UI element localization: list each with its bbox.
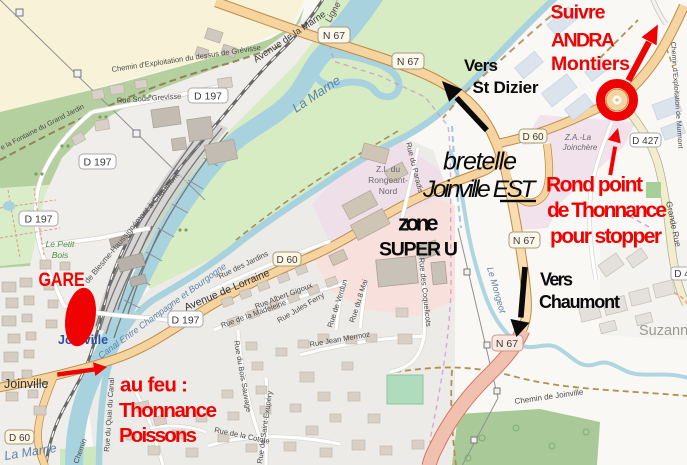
svg-text:D 197: D 197 bbox=[24, 214, 52, 226]
svg-text:N 67: N 67 bbox=[496, 338, 518, 350]
svg-text:Le Petit: Le Petit bbox=[46, 239, 75, 249]
svg-text:de Thonnance: de Thonnance bbox=[547, 199, 667, 222]
svg-text:D 197: D 197 bbox=[194, 91, 222, 103]
svg-text:St Dizier: St Dizier bbox=[473, 78, 539, 97]
svg-text:SUPER U: SUPER U bbox=[379, 239, 458, 261]
svg-text:N 67: N 67 bbox=[397, 56, 419, 68]
svg-text:D 60: D 60 bbox=[9, 433, 31, 444]
svg-text:Z.A.-La: Z.A.-La bbox=[564, 133, 592, 142]
svg-text:D 197: D 197 bbox=[83, 157, 111, 169]
svg-text:Suzann: Suzann bbox=[639, 323, 687, 339]
svg-text:Rond point: Rond point bbox=[546, 173, 643, 196]
svg-text:au feu :: au feu : bbox=[120, 374, 188, 397]
svg-text:pour stopper: pour stopper bbox=[550, 225, 662, 248]
svg-text:Rongeant-: Rongeant- bbox=[368, 175, 408, 185]
svg-text:Chaumont: Chaumont bbox=[539, 292, 620, 312]
svg-text:Joinville EST: Joinville EST bbox=[422, 176, 538, 203]
svg-text:Joinville: Joinville bbox=[4, 377, 49, 391]
svg-text:Nord: Nord bbox=[379, 186, 398, 196]
svg-text:N 67: N 67 bbox=[513, 235, 535, 247]
svg-text:Z.I. du: Z.I. du bbox=[376, 164, 400, 174]
svg-text:D 4: D 4 bbox=[674, 269, 687, 280]
svg-text:Thonnance: Thonnance bbox=[119, 399, 217, 422]
svg-text:N 67: N 67 bbox=[323, 30, 345, 42]
svg-text:D 427: D 427 bbox=[632, 136, 659, 147]
svg-text:Bois: Bois bbox=[52, 250, 69, 260]
svg-text:D 197: D 197 bbox=[171, 315, 199, 327]
svg-text:bretelle: bretelle bbox=[443, 147, 517, 175]
svg-text:D 60: D 60 bbox=[522, 132, 544, 143]
svg-text:GARE: GARE bbox=[39, 269, 85, 291]
svg-text:D 60: D 60 bbox=[276, 255, 298, 266]
svg-text:Joinchère: Joinchère bbox=[562, 143, 598, 152]
svg-text:zone: zone bbox=[398, 211, 439, 236]
svg-text:ANDRA: ANDRA bbox=[551, 30, 615, 52]
svg-text:Suivre: Suivre bbox=[551, 2, 606, 24]
svg-text:Vers: Vers bbox=[540, 270, 573, 290]
svg-text:Vers: Vers bbox=[464, 56, 498, 75]
svg-text:Poissons: Poissons bbox=[119, 424, 197, 447]
svg-text:Montiers: Montiers bbox=[551, 53, 630, 75]
